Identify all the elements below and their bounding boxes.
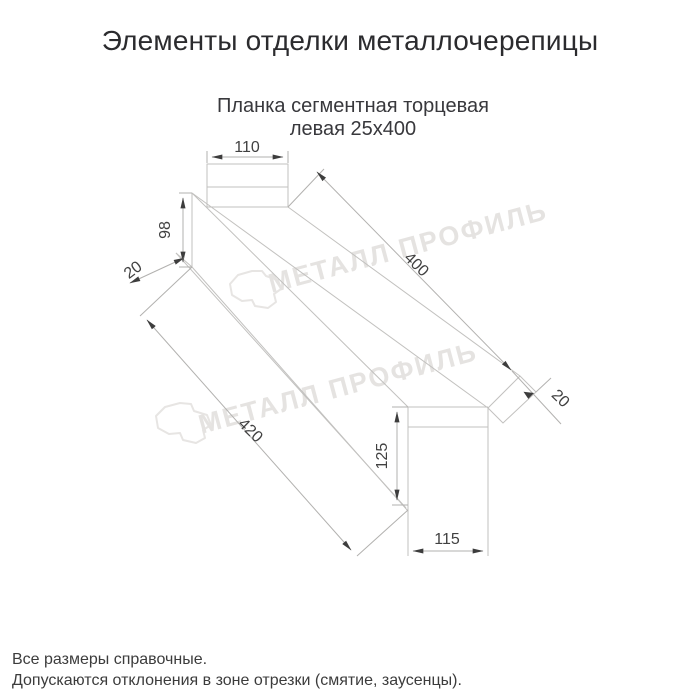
dim-label-top-width: 110 [234, 139, 260, 156]
dim-label-right-height: 125 [374, 443, 391, 470]
footnote-line-1: Все размеры справочные. [12, 649, 462, 670]
dim-label-left-hem: 20 [121, 258, 146, 282]
dim-label-left-height: 98 [157, 221, 174, 239]
footnotes: Все размеры справочные. Допускаются откл… [12, 649, 462, 691]
product-drawing-page: { "page": { "title": "Элементы отделки м… [0, 0, 700, 700]
dim-label-right-hem: 20 [548, 386, 573, 411]
dimension-labels: 110 98 20 400 20 420 125 115 [121, 139, 572, 548]
dim-label-right-width: 115 [434, 531, 460, 548]
watermark-text-1: МЕТАЛЛ ПРОФИЛЬ [265, 195, 550, 298]
brand-watermarks: МЕТАЛЛ ПРОФИЛЬ МЕТАЛЛ ПРОФИЛЬ [156, 195, 551, 443]
technical-drawing: МЕТАЛЛ ПРОФИЛЬ МЕТАЛЛ ПРОФИЛЬ [0, 0, 700, 700]
footnote-line-2: Допускаются отклонения в зоне отрезки (с… [12, 670, 462, 691]
